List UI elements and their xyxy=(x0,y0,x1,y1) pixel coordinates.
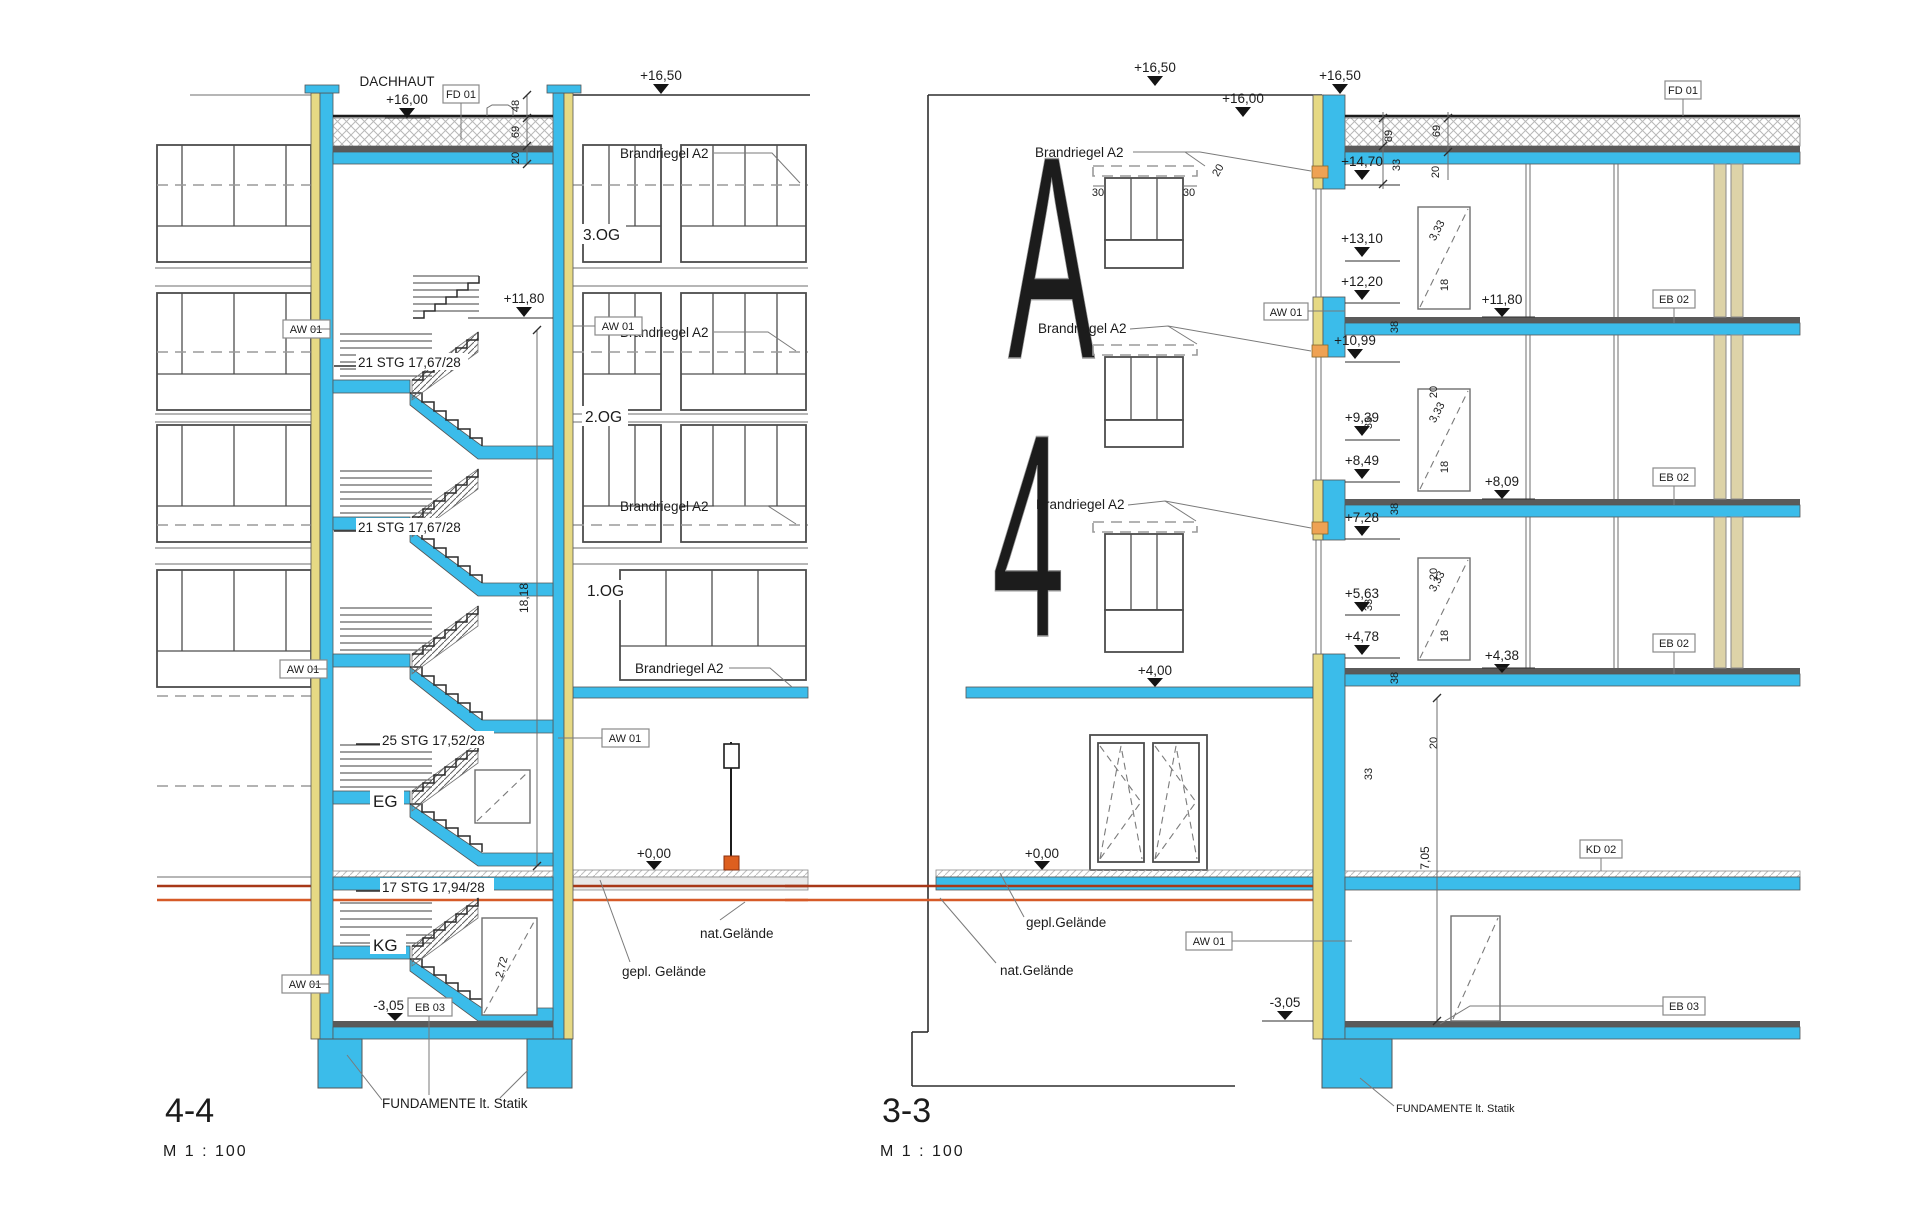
level-marker-4-00: +4,00 xyxy=(1138,663,1172,687)
svg-text:33: 33 xyxy=(1363,417,1375,429)
svg-text:+8,49: +8,49 xyxy=(1345,453,1379,468)
svg-text:Brandriegel A2: Brandriegel A2 xyxy=(1038,321,1127,336)
svg-text:20: 20 xyxy=(510,152,522,164)
svg-text:AW 01: AW 01 xyxy=(1193,936,1226,948)
svg-text:20: 20 xyxy=(1428,737,1440,749)
label-fundamente-right: FUNDAMENTE lt. Statik xyxy=(1396,1103,1515,1115)
svg-text:+4,78: +4,78 xyxy=(1345,629,1379,644)
eb02-tags: EB 02 EB 02 EB 02 xyxy=(1653,290,1695,674)
level-marker-0-00-left: +0,00 xyxy=(637,846,671,870)
svg-text:EB 02: EB 02 xyxy=(1659,472,1689,484)
svg-text:48: 48 xyxy=(510,100,522,112)
svg-text:AW 01: AW 01 xyxy=(609,733,642,745)
brandriegel-band xyxy=(573,687,808,698)
section-title-33: 3-3 xyxy=(882,1092,931,1130)
level-marker-m3-05-left: -3,05 xyxy=(373,998,404,1021)
svg-text:+10,99: +10,99 xyxy=(1334,333,1376,348)
svg-text:89: 89 xyxy=(1383,130,1395,142)
roof-slab-right xyxy=(1345,116,1800,164)
svg-text:gepl.Gelände: gepl.Gelände xyxy=(1026,915,1106,930)
level-marker-16-50-a: +16,50 xyxy=(1134,60,1176,86)
svg-text:33: 33 xyxy=(1363,768,1375,780)
svg-text:+4,38: +4,38 xyxy=(1485,648,1519,663)
svg-text:+8,09: +8,09 xyxy=(1485,474,1519,489)
svg-text:4: 4 xyxy=(992,373,1065,698)
svg-text:7,05: 7,05 xyxy=(1418,846,1432,870)
kd02-tag: KD 02 xyxy=(1580,840,1622,871)
svg-text:KD 02: KD 02 xyxy=(1586,844,1617,856)
svg-text:-3,05: -3,05 xyxy=(373,998,404,1013)
svg-text:38: 38 xyxy=(1389,672,1401,684)
eg-casement-window xyxy=(1090,735,1207,870)
svg-text:+0,00: +0,00 xyxy=(1025,846,1059,861)
svg-text:nat.Gelände: nat.Gelände xyxy=(700,926,774,941)
section-44: 2,72 DACHHAUT +16,00 FD 01 +16,50 48 69 … xyxy=(155,68,810,1160)
svg-text:18,18: 18,18 xyxy=(517,583,531,613)
svg-text:2.OG: 2.OG xyxy=(585,409,622,426)
svg-text:69: 69 xyxy=(510,126,522,138)
svg-text:FD 01: FD 01 xyxy=(1668,85,1698,97)
svg-text:A: A xyxy=(1008,95,1095,420)
label-dachhaut: DACHHAUT xyxy=(359,74,434,89)
level-marker-0-00-right: +0,00 xyxy=(1025,846,1059,870)
svg-text:+5,63: +5,63 xyxy=(1345,586,1379,601)
svg-text:Brandriegel A2: Brandriegel A2 xyxy=(635,661,724,676)
svg-text:+12,20: +12,20 xyxy=(1341,274,1383,289)
svg-text:EB 03: EB 03 xyxy=(1669,1001,1699,1013)
svg-text:20: 20 xyxy=(1428,386,1440,398)
svg-text:3.OG: 3.OG xyxy=(583,227,620,244)
svg-text:AW 01: AW 01 xyxy=(290,324,323,336)
timber-columns xyxy=(1714,164,1743,668)
facade-window-column: 30 30 xyxy=(1092,166,1197,652)
label-fundamente-left: FUNDAMENTE lt. Statik xyxy=(382,1096,528,1111)
svg-text:+4,00: +4,00 xyxy=(1138,663,1172,678)
svg-text:FD 01: FD 01 xyxy=(446,89,476,101)
level-marker-11-80-left: +11,80 xyxy=(468,291,553,318)
svg-text:EG: EG xyxy=(373,792,398,811)
svg-text:20: 20 xyxy=(1210,162,1227,179)
svg-text:21 STG 17,67/28: 21 STG 17,67/28 xyxy=(358,520,461,535)
svg-text:EB 02: EB 02 xyxy=(1659,294,1689,306)
lamp-post xyxy=(724,742,739,870)
svg-text:+11,80: +11,80 xyxy=(1482,292,1523,307)
svg-text:+16,50: +16,50 xyxy=(640,68,682,83)
fd01-tag-right: FD 01 xyxy=(1665,81,1701,116)
section-33: A 4 30 30 xyxy=(785,60,1800,1160)
svg-text:21 STG 17,67/28: 21 STG 17,67/28 xyxy=(358,355,461,370)
section-letters: A 4 xyxy=(992,95,1095,698)
svg-text:AW 01: AW 01 xyxy=(1270,307,1303,319)
eb03-tag-left: EB 03 xyxy=(408,998,452,1095)
svg-text:+16,00: +16,00 xyxy=(1222,91,1264,106)
svg-text:Brandriegel A2: Brandriegel A2 xyxy=(620,499,709,514)
drawing-sheet: 2,72 DACHHAUT +16,00 FD 01 +16,50 48 69 … xyxy=(0,0,1920,1210)
exterior-wall-section xyxy=(1312,95,1345,1039)
kg-door: 2,72 xyxy=(482,918,537,1015)
svg-text:Brandriegel A2: Brandriegel A2 xyxy=(1036,497,1125,512)
svg-text:-3,05: -3,05 xyxy=(1270,995,1301,1010)
svg-text:AW 01: AW 01 xyxy=(602,321,635,333)
svg-text:18: 18 xyxy=(1439,461,1451,473)
facade-left-windows xyxy=(155,95,311,877)
svg-text:+16,50: +16,50 xyxy=(1319,68,1361,83)
svg-text:18: 18 xyxy=(1439,630,1451,642)
svg-text:Brandriegel A2: Brandriegel A2 xyxy=(1035,145,1124,160)
eg-door xyxy=(475,770,530,823)
svg-text:30: 30 xyxy=(1092,187,1104,199)
svg-text:25 STG 17,52/28: 25 STG 17,52/28 xyxy=(382,733,485,748)
brandriegel-band-4-00 xyxy=(966,687,1313,698)
svg-text:69: 69 xyxy=(1431,125,1443,137)
svg-text:Brandriegel A2: Brandriegel A2 xyxy=(620,146,709,161)
svg-text:+16,50: +16,50 xyxy=(1134,60,1176,75)
svg-text:30: 30 xyxy=(1183,187,1195,199)
foundation-right xyxy=(1322,1039,1394,1106)
level-marker-16-50-b: +16,50 xyxy=(1319,68,1361,94)
terrain-labels-left: nat.Gelände gepl. Gelände xyxy=(600,880,774,979)
interior-posts xyxy=(1526,164,1743,668)
svg-text:AW 01: AW 01 xyxy=(289,979,322,991)
svg-text:+14,70: +14,70 xyxy=(1341,154,1383,169)
svg-text:17 STG 17,94/28: 17 STG 17,94/28 xyxy=(382,880,485,895)
svg-text:EB 02: EB 02 xyxy=(1659,638,1689,650)
levels-slab-right: +11,80 +8,09 +4,38 xyxy=(1482,292,1535,673)
svg-text:KG: KG xyxy=(373,936,398,955)
svg-text:EB 03: EB 03 xyxy=(415,1002,445,1014)
drawing-canvas: 2,72 DACHHAUT +16,00 FD 01 +16,50 48 69 … xyxy=(0,0,1920,1210)
section-scale-44: M 1 : 100 xyxy=(163,1143,248,1160)
svg-text:33: 33 xyxy=(1363,599,1375,611)
svg-text:gepl. Gelände: gepl. Gelände xyxy=(622,964,706,979)
level-marker-16-50-left: +16,50 xyxy=(640,68,682,94)
svg-text:+11,80: +11,80 xyxy=(504,291,545,306)
svg-text:38: 38 xyxy=(1389,503,1401,515)
svg-text:+0,00: +0,00 xyxy=(637,846,671,861)
svg-text:38: 38 xyxy=(1389,321,1401,333)
svg-text:AW 01: AW 01 xyxy=(287,664,320,676)
svg-text:+13,10: +13,10 xyxy=(1341,231,1383,246)
section-title-44: 4-4 xyxy=(165,1092,214,1130)
section-scale-33: M 1 : 100 xyxy=(880,1143,965,1160)
levels-interior: +14,70 +13,10 +12,20 +10,99 +9,39 +8,49 … xyxy=(1334,154,1400,658)
svg-text:+16,00: +16,00 xyxy=(386,92,428,107)
svg-text:+7,28: +7,28 xyxy=(1345,510,1379,525)
svg-text:nat.Gelände: nat.Gelände xyxy=(1000,963,1074,978)
foundations-left-drawing xyxy=(318,1021,572,1100)
svg-text:18: 18 xyxy=(1439,279,1451,291)
svg-text:1.OG: 1.OG xyxy=(587,583,624,600)
svg-text:20: 20 xyxy=(1430,166,1442,178)
level-marker-16-00-right: +16,00 xyxy=(1222,91,1264,117)
level-marker-m3-05-right: -3,05 xyxy=(1262,995,1313,1021)
level-marker-16-00-left: +16,00 xyxy=(385,92,430,118)
brandriegel-right-3: Brandriegel A2 xyxy=(1036,497,1311,528)
svg-text:33: 33 xyxy=(1391,159,1403,171)
stair-flights xyxy=(333,276,553,1021)
